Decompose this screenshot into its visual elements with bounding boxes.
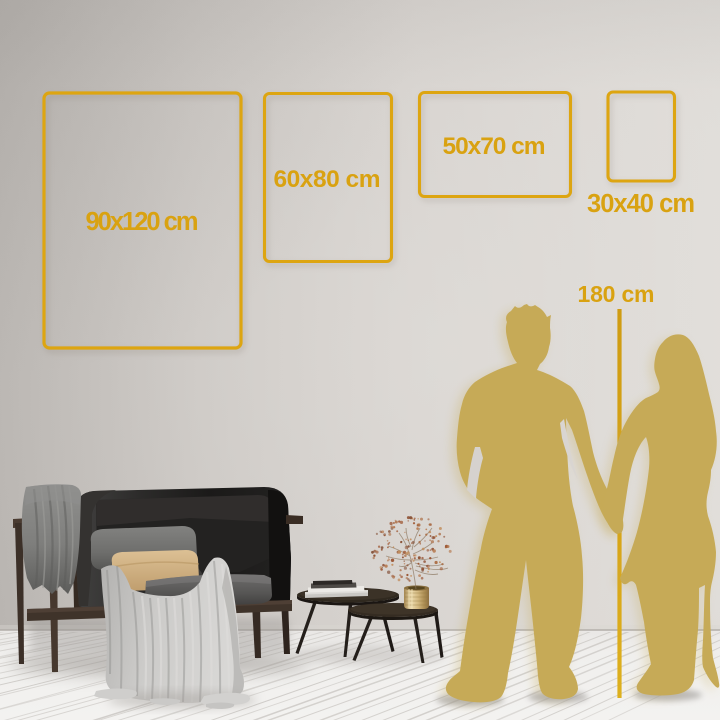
- svg-text:30x40 cm: 30x40 cm: [587, 190, 695, 218]
- svg-text:50x70 cm: 50x70 cm: [443, 133, 546, 160]
- svg-text:90x120 cm: 90x120 cm: [86, 208, 199, 236]
- svg-text:180 cm: 180 cm: [578, 281, 655, 307]
- svg-text:60x80 cm: 60x80 cm: [274, 166, 381, 193]
